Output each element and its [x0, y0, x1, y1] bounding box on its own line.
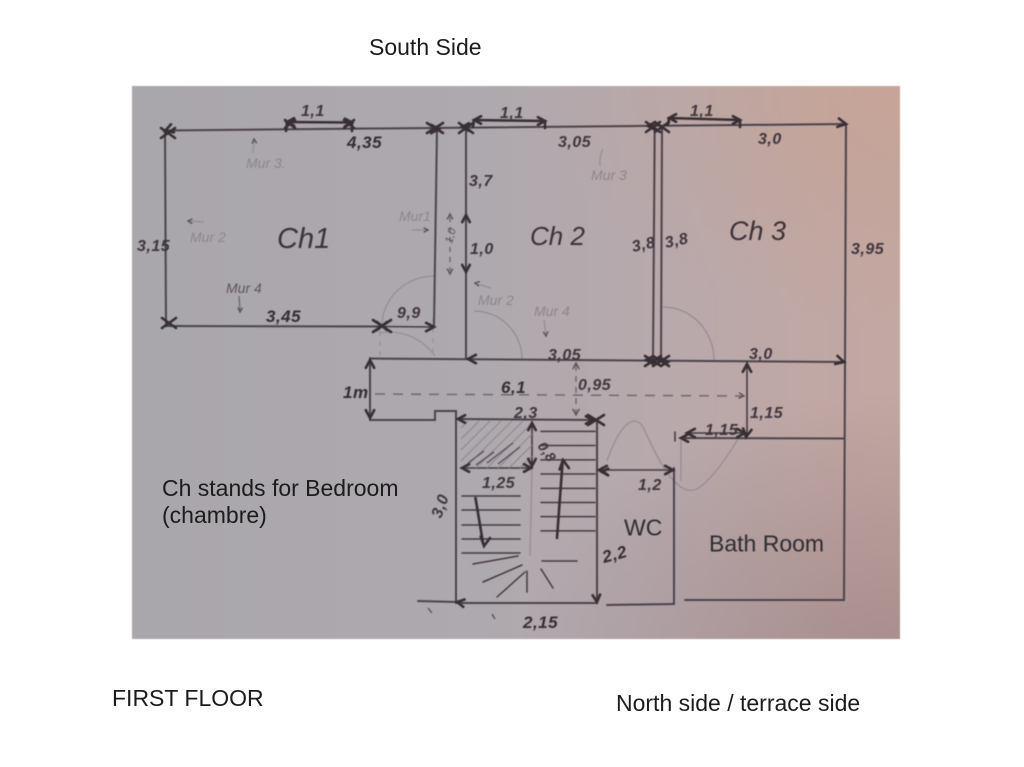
- svg-text:Ch 2: Ch 2: [530, 221, 585, 251]
- svg-text:Ch1: Ch1: [277, 223, 330, 255]
- svg-text:1,15: 1,15: [705, 422, 739, 439]
- svg-text:Ch 3: Ch 3: [729, 216, 786, 246]
- svg-text:Mur 3: Mur 3: [591, 167, 627, 183]
- svg-text:3,05: 3,05: [558, 134, 592, 151]
- svg-text:3,45: 3,45: [266, 307, 301, 326]
- svg-text:Mur1: Mur1: [399, 208, 431, 224]
- svg-text:Mur 2: Mur 2: [190, 229, 226, 245]
- svg-text:3,0: 3,0: [749, 346, 773, 363]
- svg-text:1,15: 1,15: [750, 405, 784, 422]
- svg-text:1,1: 1,1: [301, 103, 325, 120]
- svg-text:3,05: 3,05: [548, 347, 582, 364]
- svg-text:WC: WC: [624, 515, 662, 541]
- svg-text:2,15: 2,15: [522, 613, 558, 632]
- svg-text:3,15: 3,15: [137, 238, 171, 255]
- svg-text:2,3: 2,3: [513, 405, 538, 422]
- svg-text:9,9: 9,9: [397, 305, 421, 322]
- svg-text:Bath Room: Bath Room: [709, 531, 824, 557]
- svg-text:1m: 1m: [343, 383, 369, 402]
- svg-text:Mur 3.: Mur 3.: [246, 155, 286, 171]
- svg-text:6,1: 6,1: [501, 378, 526, 397]
- svg-text:3,95: 3,95: [851, 241, 885, 258]
- svg-text:4,35: 4,35: [346, 133, 382, 152]
- svg-text:Mur 2: Mur 2: [478, 292, 514, 308]
- svg-text:1,25: 1,25: [482, 475, 516, 492]
- svg-text:3,0: 3,0: [758, 131, 782, 148]
- svg-text:3,7: 3,7: [469, 173, 493, 190]
- svg-text:Mur 4: Mur 4: [226, 280, 262, 296]
- svg-text:1,0: 1,0: [470, 241, 494, 258]
- svg-text:0,95: 0,95: [578, 377, 612, 394]
- svg-text:1,1: 1,1: [690, 103, 714, 120]
- svg-text:1,2: 1,2: [638, 477, 662, 494]
- svg-text:Mur 4: Mur 4: [534, 303, 570, 319]
- svg-text:1,1: 1,1: [500, 105, 524, 122]
